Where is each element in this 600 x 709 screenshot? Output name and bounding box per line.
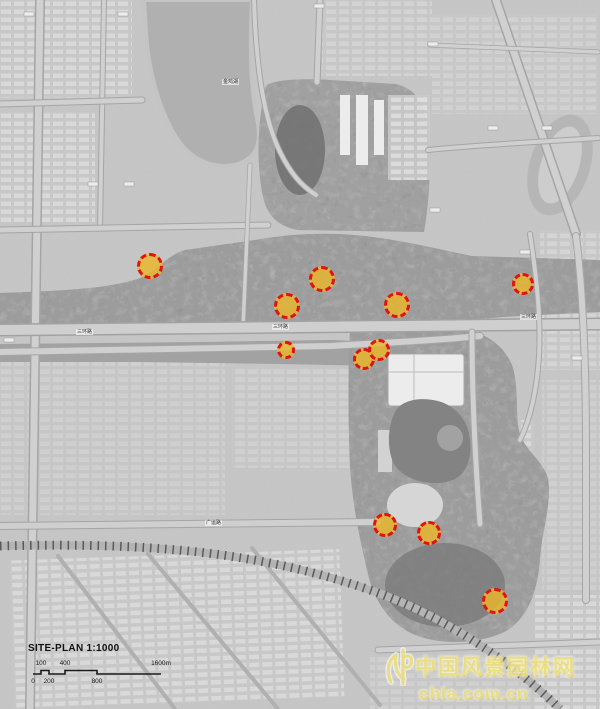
- scale-label-0: 0: [31, 678, 35, 685]
- scale-bar: 100 400 1600m 0 200 800: [28, 654, 208, 692]
- scale-label-1600: 1600m: [151, 660, 171, 667]
- watermark-site-name: 中国风景园林网: [415, 651, 576, 681]
- scale-label-800: 800: [92, 678, 103, 685]
- watermark-url: chla.com.cn: [419, 684, 598, 704]
- scale-label-200: 200: [44, 678, 55, 685]
- scale-legend: SITE-PLAN 1:1000 100 400 1600m 0 200 800: [28, 643, 208, 697]
- scale-label-100: 100: [36, 660, 47, 667]
- watermark: 中国风景园林网 chla.com.cn: [383, 646, 598, 704]
- basemap-graphic: [0, 0, 600, 709]
- chla-logo-icon: [383, 646, 415, 686]
- scale-label-400: 400: [60, 660, 71, 667]
- scale-bar-line: [33, 671, 161, 675]
- site-plan-title: SITE-PLAN 1:1000: [28, 643, 208, 654]
- site-plan-map: 金鸡湖三环路三环路三环路广运路 SITE-PLAN 1:1000 100 400…: [0, 0, 600, 709]
